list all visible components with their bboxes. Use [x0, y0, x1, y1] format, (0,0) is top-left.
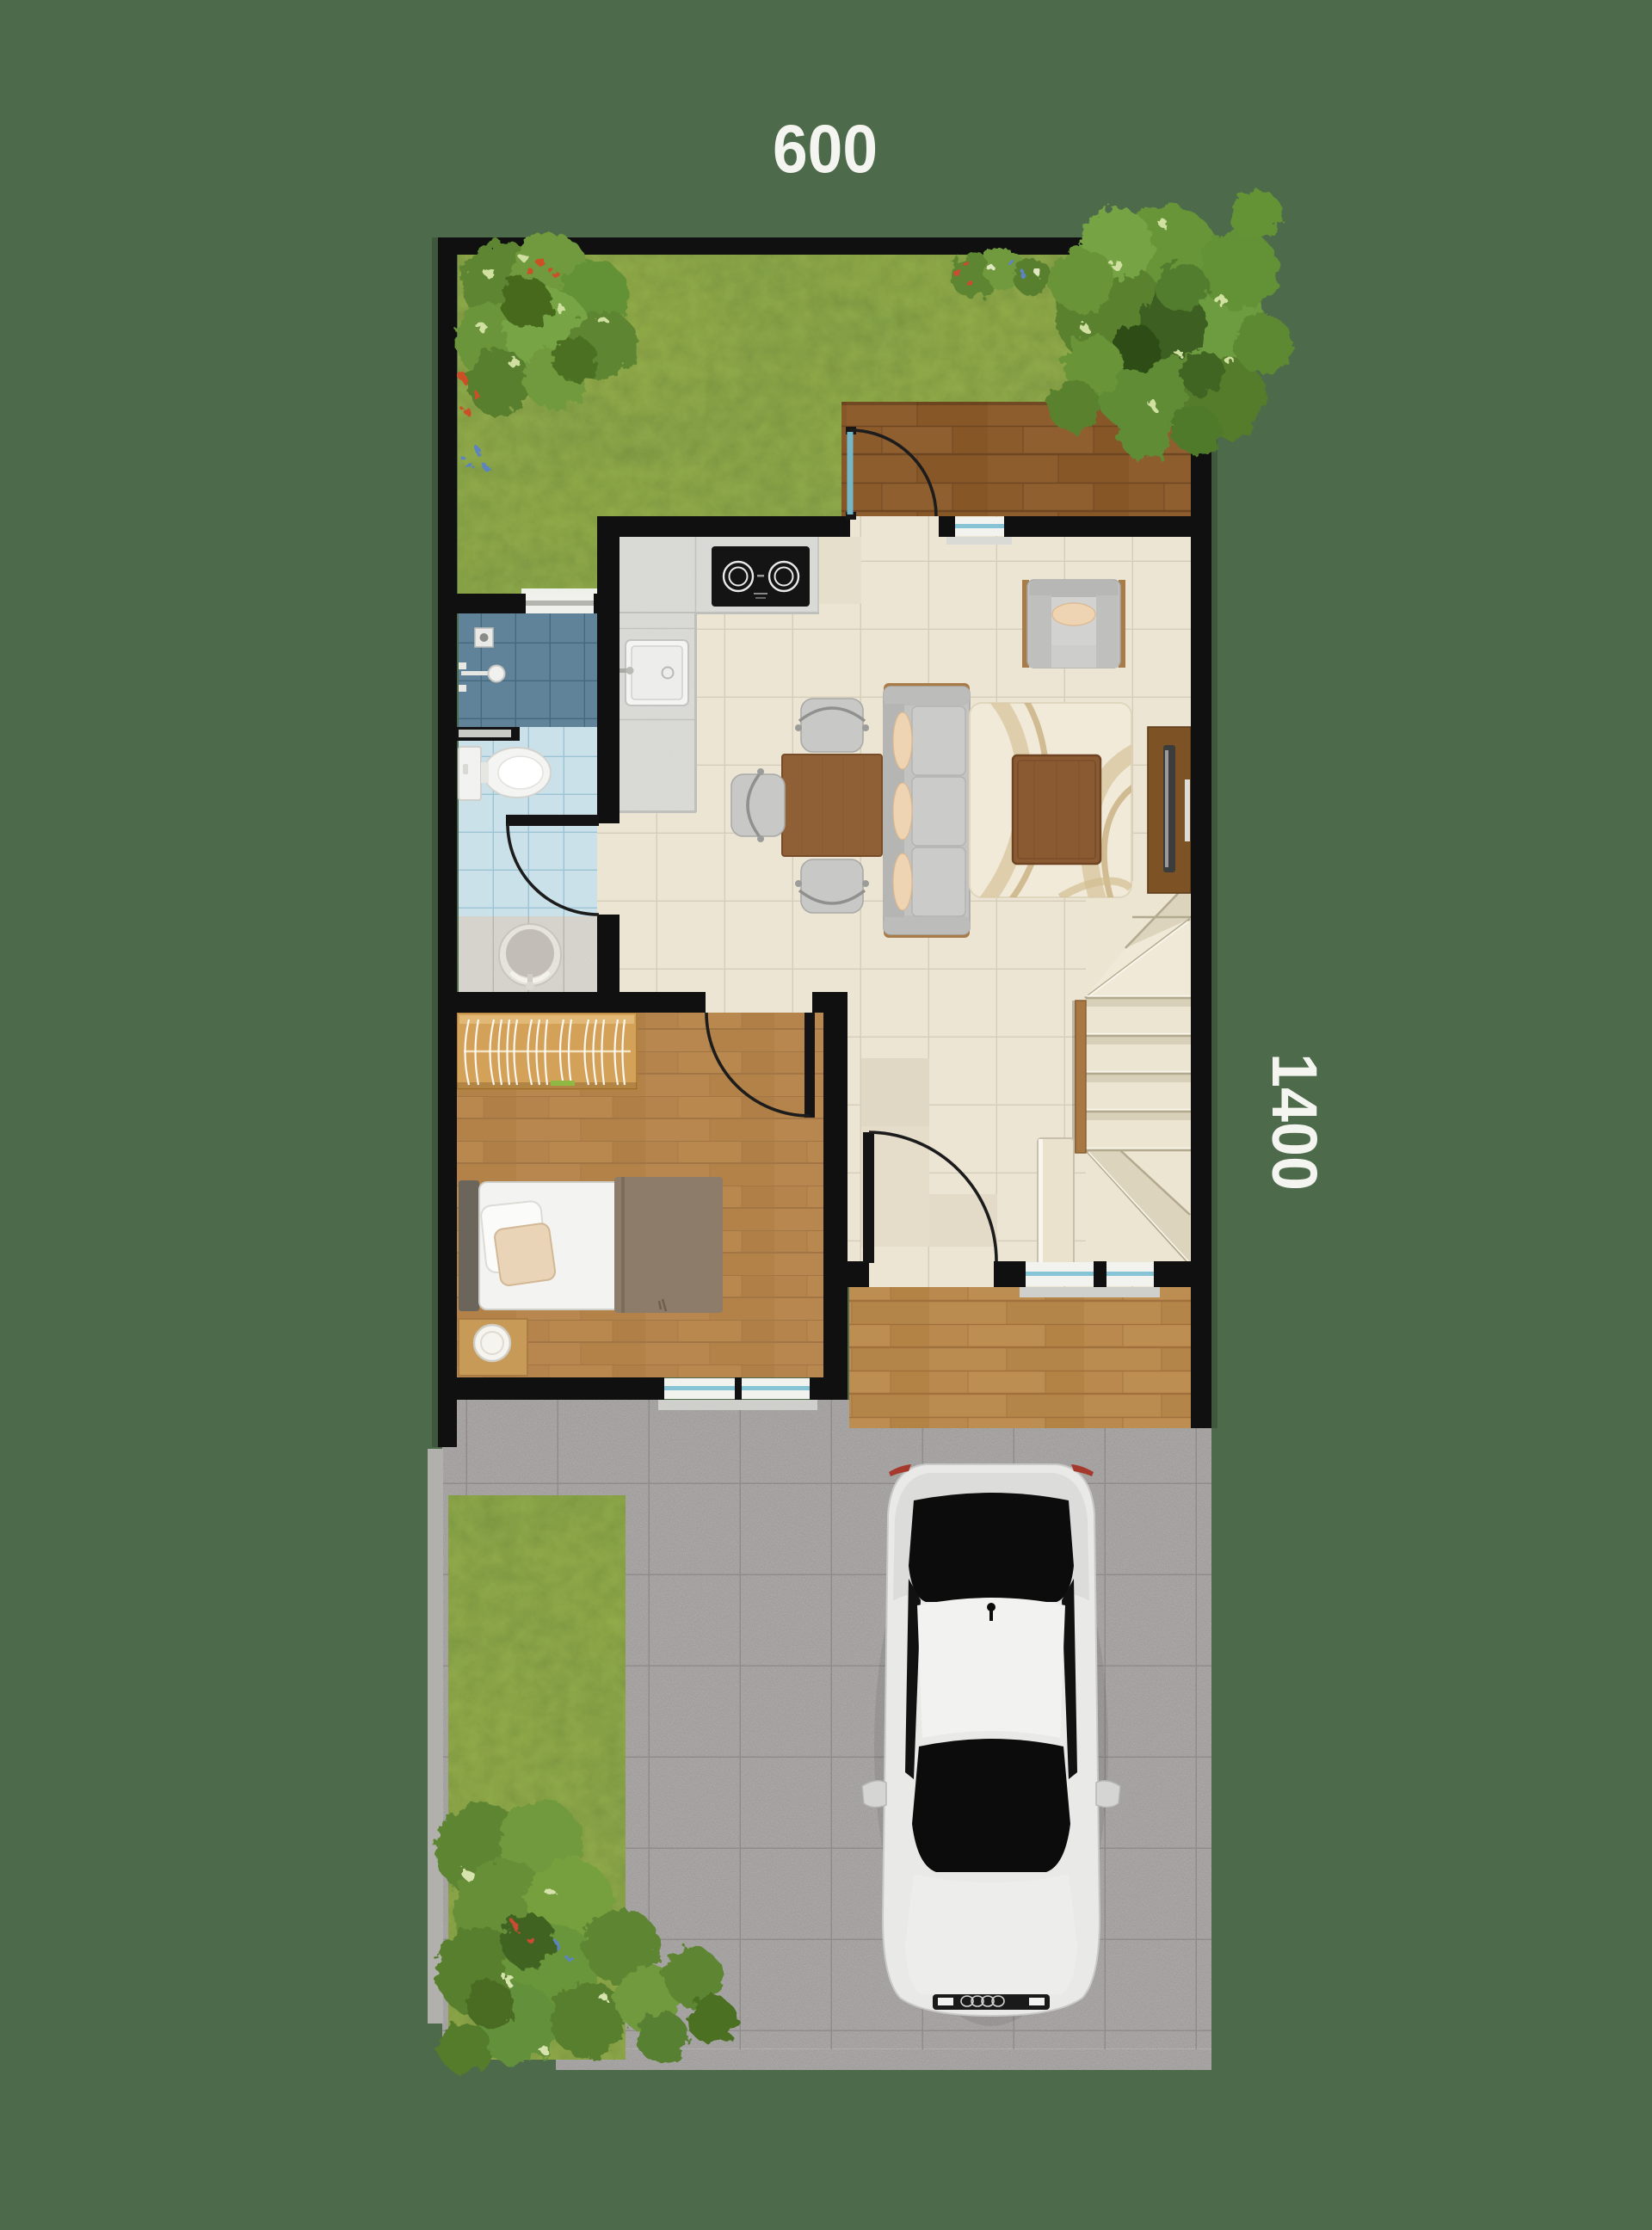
svg-text:1400: 1400	[1259, 1053, 1330, 1191]
svg-text:600: 600	[773, 110, 878, 187]
